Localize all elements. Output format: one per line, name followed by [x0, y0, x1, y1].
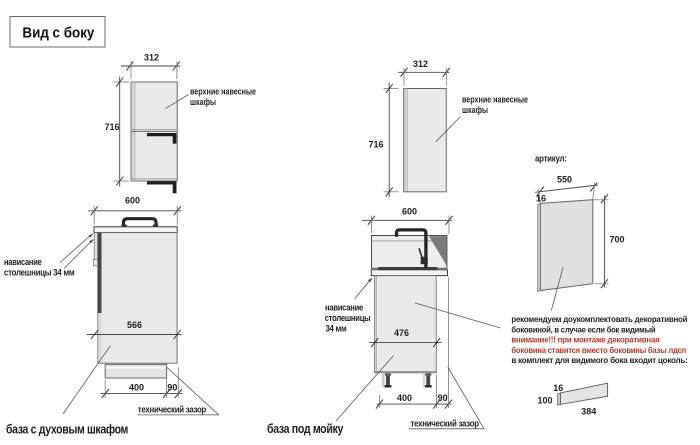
svg-text:34 мм: 34 мм: [326, 323, 348, 333]
svg-text:столешницы 34 мм: столешницы 34 мм: [4, 268, 75, 278]
svg-text:боковина ставится вместо боков: боковина ставится вместо боковины базы л…: [511, 345, 686, 355]
svg-text:база под мойку: база под мойку: [267, 422, 343, 436]
svg-text:шкафы: шкафы: [190, 97, 216, 107]
svg-text:верхние навесные: верхние навесные: [462, 95, 528, 105]
svg-text:312: 312: [144, 52, 159, 62]
svg-text:16: 16: [536, 194, 546, 204]
svg-text:Вид с боку: Вид с боку: [22, 25, 95, 42]
svg-text:550: 550: [557, 174, 572, 184]
svg-text:600: 600: [402, 207, 417, 217]
svg-text:312: 312: [413, 59, 428, 69]
svg-text:база с духовым шкафом: база с духовым шкафом: [6, 423, 128, 437]
svg-text:технический зазор: технический зазор: [138, 405, 207, 415]
svg-text:в комплект для видимого бока в: в комплект для видимого бока входит цоко…: [511, 355, 687, 365]
svg-text:16: 16: [553, 383, 563, 393]
svg-text:476: 476: [394, 328, 409, 338]
svg-text:700: 700: [609, 235, 624, 245]
svg-text:716: 716: [104, 122, 119, 132]
svg-text:столешницы: столешницы: [325, 313, 371, 323]
svg-text:400: 400: [397, 393, 412, 403]
svg-text:566: 566: [127, 320, 142, 330]
svg-text:боковиной, в случае если бок в: боковиной, в случае если бок видимый: [511, 324, 655, 334]
svg-text:нависание: нависание: [4, 257, 42, 267]
svg-text:100: 100: [537, 396, 552, 406]
svg-text:рекомендуем доукомплектовать д: рекомендуем доукомплектовать декоративно…: [511, 314, 687, 324]
svg-text:верхние навесные: верхние навесные: [190, 87, 256, 97]
svg-text:внимание!!! при монтаже декора: внимание!!! при монтаже декоративная: [511, 335, 659, 345]
svg-text:нависание: нависание: [325, 303, 363, 313]
svg-text:артикул:: артикул:: [535, 154, 567, 164]
svg-text:технический зазор: технический зазор: [411, 419, 480, 429]
svg-text:716: 716: [368, 140, 383, 150]
svg-text:600: 600: [125, 195, 140, 205]
svg-text:384: 384: [581, 407, 596, 417]
svg-text:400: 400: [129, 383, 144, 393]
svg-text:шкафы: шкафы: [462, 105, 488, 115]
